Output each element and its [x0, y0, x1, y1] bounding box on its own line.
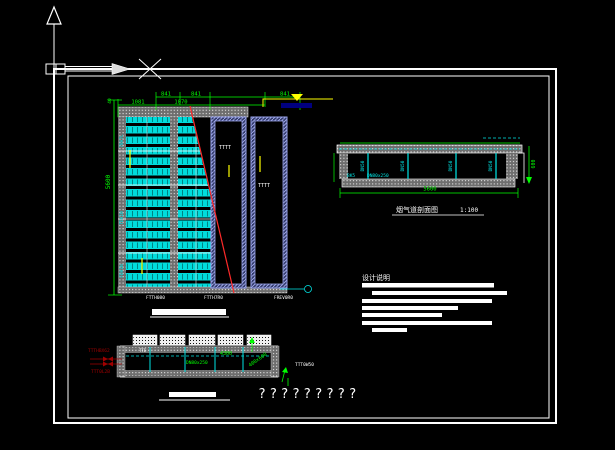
dim-text: 841 — [280, 92, 290, 98]
section-title: 烟气道剖面图 — [396, 205, 438, 214]
note-line — [362, 299, 492, 303]
duct-label: DN50 — [488, 160, 494, 171]
section-scale: 1:100 — [460, 207, 478, 214]
note-line — [362, 283, 494, 288]
section-end-wall — [506, 153, 518, 179]
note-line — [372, 291, 507, 295]
cad-drawing: TTTT TTTT 841 841 841 1081 1070 — [0, 0, 615, 450]
red-note: TTTHBX62 — [88, 348, 110, 354]
section-note: BK5 — [347, 173, 355, 179]
dim-text: 841 — [161, 92, 171, 98]
hatch-block — [189, 335, 215, 345]
hatch-block — [218, 335, 243, 345]
duct-label: DN50 — [400, 160, 406, 171]
plan-top-wall — [118, 107, 248, 117]
hatch-block — [133, 335, 157, 345]
section-view-bottom: TTTHBX62 TTT0L2B 4300 DN80x250 400x600 T… — [88, 335, 314, 386]
ucs-x-arrow — [112, 64, 130, 75]
section-view-top: DN50 DN50 DN50 DN50 BK5 DN80x250 600 560… — [334, 138, 537, 215]
dim-text: 4300 — [220, 351, 232, 357]
section-note: DN80x250 — [367, 173, 389, 179]
footer: ????????? — [159, 387, 360, 402]
duct-label: DN50 — [360, 160, 366, 171]
section-mark-leader — [263, 94, 333, 108]
plan-note: FREV0R0 — [274, 295, 293, 301]
duct-size-label: DN80x250 — [186, 360, 208, 366]
plan-note: FTTH080 — [146, 295, 165, 301]
mullion — [170, 117, 178, 288]
leader-caption-bar — [281, 103, 312, 108]
notes-heading: 设计说明 — [362, 273, 390, 282]
shaft-label: TTTT — [258, 183, 270, 189]
note-line — [362, 313, 442, 317]
footer-title-bar — [169, 392, 216, 397]
section-mark-icon — [291, 94, 303, 101]
note-line — [362, 321, 492, 325]
dim-text: 5600 — [423, 187, 436, 193]
plan-title-bar — [152, 309, 226, 315]
note-line — [372, 328, 407, 332]
duct-end-wall — [117, 346, 125, 377]
hatch-block — [160, 335, 185, 345]
dim-text: 600 — [531, 159, 537, 168]
ucs-icon — [46, 7, 130, 75]
note-line — [362, 306, 458, 310]
shaft-label: TTTT — [219, 145, 231, 151]
arrow-icon — [526, 177, 532, 184]
small-note: TTE — [139, 348, 147, 353]
row-label: 78H7L — [119, 134, 125, 148]
duct-bottom-slab — [124, 370, 272, 376]
row-label: TDH1N — [119, 211, 125, 225]
cad-canvas[interactable]: TTTT TTTT 841 841 841 1081 1070 — [0, 0, 615, 450]
duct-size-label: 400x600 — [248, 352, 269, 369]
row-label: FDH1N — [119, 264, 125, 278]
valve-icon — [103, 362, 108, 367]
shaft-column-a: TTTT — [211, 117, 246, 288]
dim-text: 40 — [107, 98, 113, 104]
side-note: TTT0W50 — [295, 362, 314, 368]
valve-icon — [103, 357, 108, 362]
duct-end-wall — [271, 346, 279, 377]
arrow-icon — [282, 367, 288, 373]
duct-label: DN50 — [448, 160, 454, 171]
red-note: TTT0L2B — [91, 369, 110, 375]
notes-block: 设计说明 — [362, 273, 507, 332]
missing-glyph-text: ????????? — [258, 387, 360, 402]
dim-text: 1070 — [174, 100, 187, 106]
plan-view: TTTT TTTT 841 841 841 1081 1070 — [105, 92, 333, 318]
dim-text: 841 — [191, 92, 201, 98]
shaft-column-b: TTTT — [251, 117, 287, 288]
dim-text: 1081 — [131, 100, 144, 106]
dim-text: 5600 — [105, 174, 112, 189]
plan-note: FTTH7R0 — [204, 295, 223, 301]
